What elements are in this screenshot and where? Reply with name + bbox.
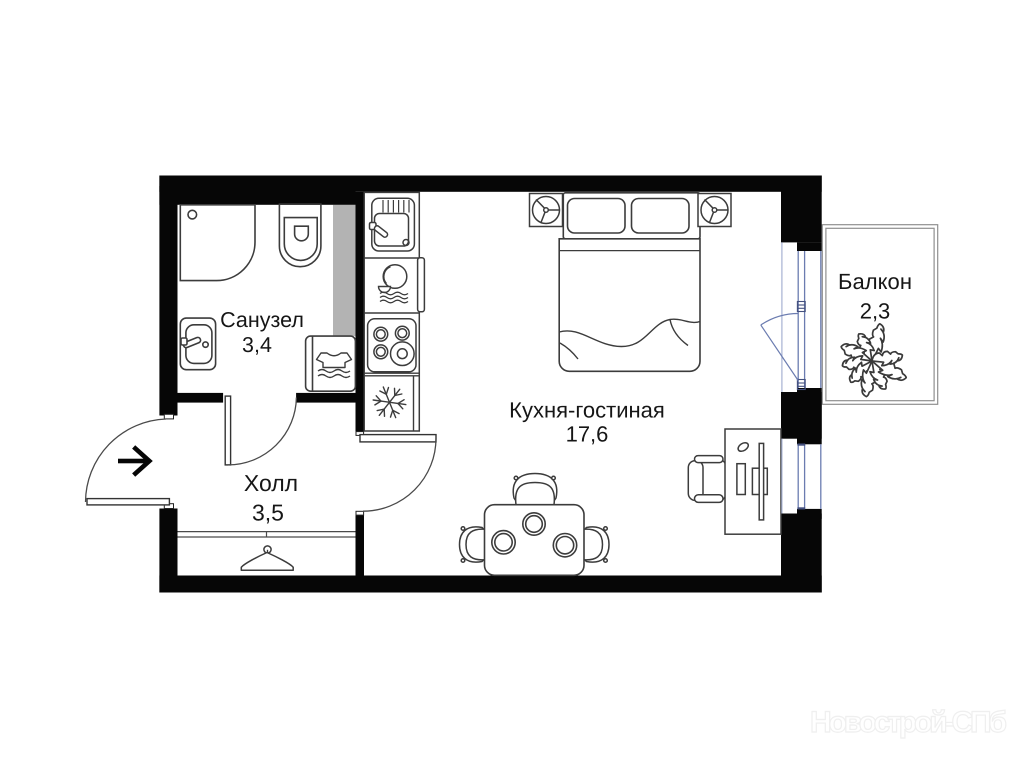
svg-text:3,5: 3,5 <box>252 500 284 526</box>
svg-text:17,6: 17,6 <box>566 422 609 447</box>
svg-text:2,3: 2,3 <box>860 299 891 324</box>
svg-text:Санузел: Санузел <box>220 308 304 332</box>
svg-text:3,4: 3,4 <box>242 333 272 357</box>
svg-text:Балкон: Балкон <box>838 269 912 294</box>
svg-text:Новострой-СПб: Новострой-СПб <box>810 706 1007 739</box>
svg-text:Кухня-гостиная: Кухня-гостиная <box>509 398 665 423</box>
svg-text:Холл: Холл <box>244 470 298 496</box>
